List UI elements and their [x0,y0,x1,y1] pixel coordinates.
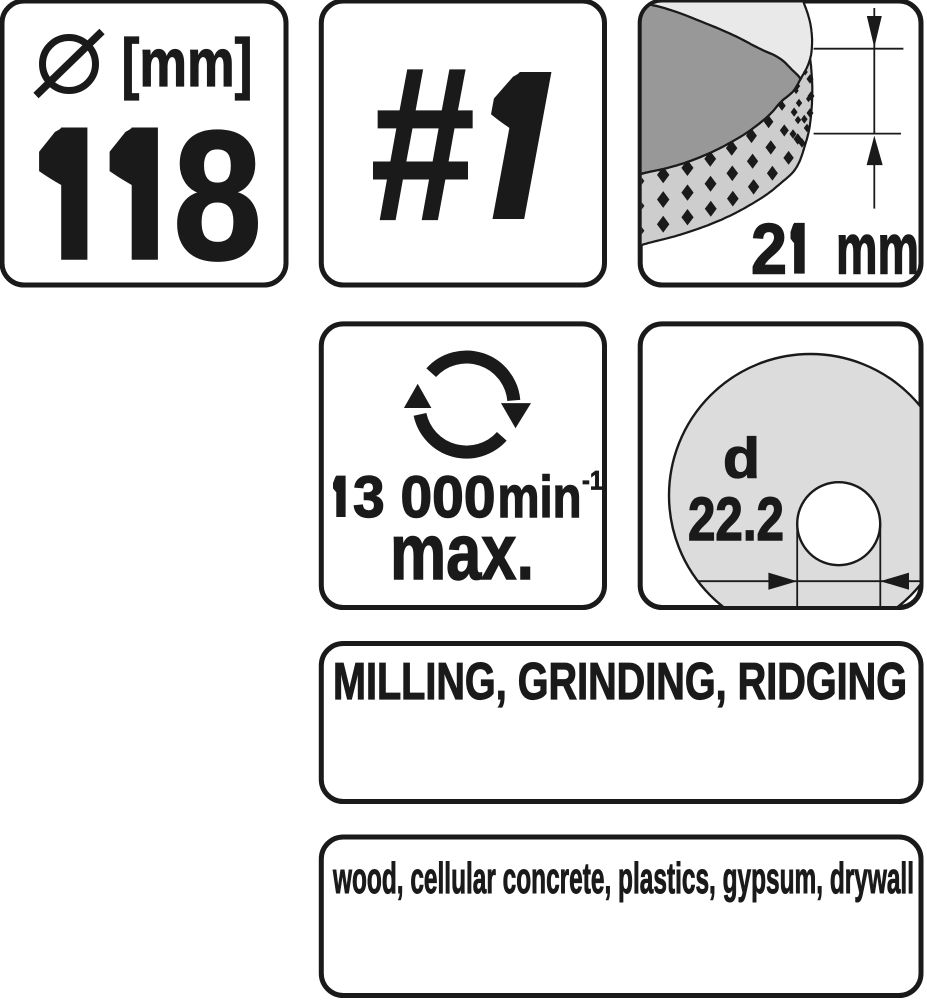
svg-text:22.2: 22.2 [688,485,784,553]
svg-text:#: # [368,23,472,266]
svg-text:-1: -1 [582,466,603,496]
svg-text:max.: max. [390,507,534,596]
svg-text:d: d [723,426,760,490]
svg-text:[mm]: [mm] [122,25,253,101]
svg-text:MILLING, GRINDING, RIDGING: MILLING, GRINDING, RIDGING [333,653,907,711]
svg-text:wood, cellular concrete, plast: wood, cellular concrete, plastics, gypsu… [332,854,914,903]
svg-text:2: 2 [751,211,787,290]
svg-text:mm: mm [836,211,919,290]
svg-text:8: 8 [173,92,262,298]
